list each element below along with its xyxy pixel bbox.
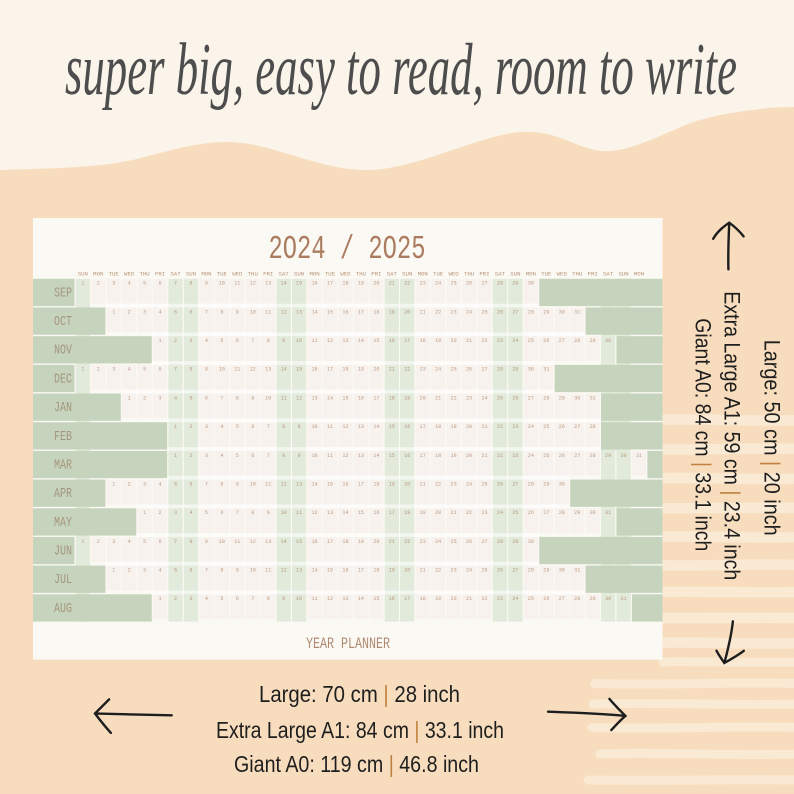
svg-text:SUN: SUN [510,272,520,278]
svg-text:4: 4 [128,539,131,545]
svg-text:29: 29 [512,539,518,545]
svg-text:13: 13 [296,568,302,574]
svg-text:Giant A0: 84 cm | 33.1 inch: Giant A0: 84 cm | 33.1 inch [690,318,715,551]
svg-text:15: 15 [389,453,395,459]
svg-text:20: 20 [420,395,426,401]
svg-text:15: 15 [327,568,333,574]
svg-text:13: 13 [327,510,333,516]
svg-text:10: 10 [219,281,225,287]
svg-text:6: 6 [251,453,254,459]
svg-text:2: 2 [97,367,100,373]
svg-text:22: 22 [404,281,410,287]
svg-text:17: 17 [420,424,426,430]
svg-text:4: 4 [220,453,223,459]
svg-text:super big, easy to read, roo: super big, easy to read, room to write [65,29,737,111]
svg-text:10: 10 [219,367,225,373]
svg-text:22: 22 [435,568,441,574]
svg-text:28: 28 [528,481,534,487]
svg-text:OCT: OCT [54,315,72,330]
svg-text:23: 23 [497,596,503,602]
svg-text:9: 9 [282,338,285,344]
svg-text:23: 23 [481,510,487,516]
svg-text:6: 6 [189,568,192,574]
svg-text:29: 29 [543,309,549,315]
svg-text:20: 20 [466,453,472,459]
svg-text:13: 13 [265,539,271,545]
svg-text:2O24 / 2O25: 2O24 / 2O25 [269,231,426,268]
svg-text:19: 19 [435,338,441,344]
svg-text:31: 31 [574,568,580,574]
svg-text:TUE: TUE [217,272,227,278]
svg-text:14: 14 [373,424,379,430]
svg-text:13: 13 [342,338,348,344]
svg-text:27: 27 [559,596,565,602]
svg-text:3: 3 [112,281,115,287]
svg-text:17: 17 [327,539,333,545]
svg-text:18: 18 [420,596,426,602]
svg-text:12: 12 [342,453,348,459]
svg-text:22: 22 [435,481,441,487]
svg-text:31: 31 [543,367,549,373]
svg-text:24: 24 [466,309,472,315]
svg-text:WED: WED [449,272,459,278]
svg-text:12: 12 [312,510,318,516]
svg-text:12: 12 [281,309,287,315]
svg-text:12: 12 [250,539,256,545]
svg-text:9: 9 [251,395,254,401]
svg-text:24: 24 [435,281,441,287]
svg-text:11: 11 [265,568,271,574]
svg-text:16: 16 [342,568,348,574]
svg-text:24: 24 [435,367,441,373]
svg-text:2: 2 [97,539,100,545]
svg-text:SEP: SEP [54,286,72,301]
svg-text:2: 2 [189,453,192,459]
svg-text:9: 9 [236,568,239,574]
svg-text:30: 30 [621,453,627,459]
svg-text:16: 16 [373,510,379,516]
svg-text:10: 10 [219,539,225,545]
svg-text:2: 2 [97,281,100,287]
svg-text:28: 28 [590,424,596,430]
svg-text:12: 12 [327,338,333,344]
svg-text:TUE: TUE [109,272,119,278]
svg-text:MON: MON [418,272,428,278]
svg-text:1: 1 [174,424,177,430]
svg-text:JAN: JAN [54,401,72,416]
svg-text:29: 29 [590,596,596,602]
svg-text:6: 6 [189,481,192,487]
svg-text:26: 26 [543,596,549,602]
svg-text:FRI: FRI [588,272,598,278]
svg-text:4: 4 [189,510,192,516]
svg-text:7: 7 [174,539,177,545]
svg-text:SUN: SUN [294,272,304,278]
svg-text:14: 14 [312,481,318,487]
svg-text:4: 4 [159,568,162,574]
svg-text:11: 11 [327,453,333,459]
svg-text:25: 25 [451,281,457,287]
svg-text:15: 15 [296,281,302,287]
svg-text:6: 6 [220,510,223,516]
svg-text:27: 27 [481,367,487,373]
svg-text:9: 9 [267,510,270,516]
svg-text:14: 14 [358,596,364,602]
svg-text:16: 16 [404,453,410,459]
svg-text:22: 22 [435,309,441,315]
svg-text:4: 4 [205,596,208,602]
svg-text:1: 1 [159,596,162,602]
svg-text:13: 13 [265,367,271,373]
svg-text:13: 13 [358,453,364,459]
svg-text:3: 3 [143,481,146,487]
svg-text:13: 13 [265,281,271,287]
svg-text:22: 22 [404,539,410,545]
svg-text:Extra Large A1: 84 cm | 33.1 i: Extra Large A1: 84 cm | 33.1 inch [216,717,504,743]
svg-text:MON: MON [634,272,644,278]
svg-text:5: 5 [143,281,146,287]
svg-text:22: 22 [451,395,457,401]
svg-text:6: 6 [159,281,162,287]
svg-text:16: 16 [404,424,410,430]
svg-text:10: 10 [250,309,256,315]
svg-text:17: 17 [420,453,426,459]
svg-text:14: 14 [373,453,379,459]
svg-text:9: 9 [205,281,208,287]
svg-text:19: 19 [404,395,410,401]
svg-text:23: 23 [420,539,426,545]
svg-text:3: 3 [159,395,162,401]
svg-text:29: 29 [512,367,518,373]
svg-text:MON: MON [93,272,103,278]
svg-text:19: 19 [389,481,395,487]
svg-text:17: 17 [358,481,364,487]
svg-text:31: 31 [590,395,596,401]
svg-text:MON: MON [201,272,211,278]
svg-text:TUE: TUE [433,272,443,278]
svg-text:10: 10 [296,338,302,344]
svg-text:21: 21 [389,539,395,545]
svg-text:15: 15 [373,596,379,602]
svg-text:24: 24 [497,510,503,516]
svg-text:22: 22 [481,596,487,602]
svg-text:4: 4 [128,367,131,373]
svg-text:27: 27 [512,309,518,315]
svg-text:10: 10 [296,596,302,602]
svg-text:18: 18 [373,568,379,574]
svg-text:FRI: FRI [155,272,165,278]
svg-text:24: 24 [466,481,472,487]
svg-text:5: 5 [205,510,208,516]
svg-text:11: 11 [281,395,287,401]
svg-text:21: 21 [389,281,395,287]
svg-text:19: 19 [358,367,364,373]
svg-text:3: 3 [205,453,208,459]
svg-text:26: 26 [497,568,503,574]
svg-text:SAT: SAT [603,272,613,278]
svg-text:DEC: DEC [54,372,72,387]
svg-text:31: 31 [574,309,580,315]
svg-text:21: 21 [420,309,426,315]
svg-text:Extra Large A1: 59 cm | 23.4 i: Extra Large A1: 59 cm | 23.4 inch [719,291,744,580]
svg-text:8: 8 [251,510,254,516]
svg-text:13: 13 [358,424,364,430]
svg-text:25: 25 [481,481,487,487]
svg-text:3: 3 [112,367,115,373]
svg-text:9: 9 [205,367,208,373]
svg-text:1: 1 [81,281,84,287]
svg-text:21: 21 [389,367,395,373]
svg-text:8: 8 [189,281,192,287]
svg-text:18: 18 [342,367,348,373]
svg-text:10: 10 [250,481,256,487]
svg-text:8: 8 [220,568,223,574]
svg-text:27: 27 [481,281,487,287]
svg-text:18: 18 [420,338,426,344]
svg-text:3: 3 [205,424,208,430]
svg-text:15: 15 [373,338,379,344]
svg-text:4: 4 [159,481,162,487]
svg-text:28: 28 [559,510,565,516]
svg-text:18: 18 [389,395,395,401]
svg-text:26: 26 [466,281,472,287]
svg-text:13: 13 [296,309,302,315]
svg-text:28: 28 [528,568,534,574]
svg-text:23: 23 [497,338,503,344]
svg-text:12: 12 [281,568,287,574]
svg-text:4: 4 [220,424,223,430]
svg-text:6: 6 [189,309,192,315]
svg-text:4: 4 [128,281,131,287]
svg-text:2: 2 [128,309,131,315]
svg-text:23: 23 [420,367,426,373]
svg-text:22: 22 [497,424,503,430]
svg-text:27: 27 [512,481,518,487]
svg-text:22: 22 [497,453,503,459]
svg-text:30: 30 [559,481,565,487]
svg-text:8: 8 [189,367,192,373]
svg-text:FRI: FRI [371,272,381,278]
svg-text:MAY: MAY [54,516,72,531]
svg-text:1: 1 [112,481,115,487]
svg-text:11: 11 [234,367,240,373]
svg-text:16: 16 [342,309,348,315]
svg-text:11: 11 [234,281,240,287]
svg-text:THU: THU [248,272,258,278]
svg-text:FEB: FEB [54,430,72,445]
svg-text:18: 18 [342,539,348,545]
svg-text:28: 28 [497,539,503,545]
svg-text:23: 23 [466,395,472,401]
svg-text:8: 8 [189,539,192,545]
svg-text:MON: MON [526,272,536,278]
svg-text:APR: APR [54,487,72,502]
svg-text:17: 17 [327,281,333,287]
svg-text:28: 28 [574,596,580,602]
svg-text:5: 5 [174,309,177,315]
svg-text:26: 26 [466,367,472,373]
svg-text:5: 5 [220,338,223,344]
svg-text:2: 2 [128,568,131,574]
svg-text:FRI: FRI [263,272,273,278]
svg-text:26: 26 [512,395,518,401]
svg-text:19: 19 [358,539,364,545]
svg-text:14: 14 [312,568,318,574]
svg-text:FRI: FRI [479,272,489,278]
svg-text:14: 14 [281,367,287,373]
svg-text:19: 19 [389,309,395,315]
svg-text:20: 20 [451,596,457,602]
svg-text:30: 30 [590,510,596,516]
svg-text:9: 9 [236,481,239,487]
svg-text:5: 5 [236,453,239,459]
svg-text:MON: MON [309,272,319,278]
svg-text:15: 15 [296,367,302,373]
svg-text:21: 21 [420,481,426,487]
svg-text:7: 7 [205,481,208,487]
svg-text:26: 26 [559,453,565,459]
svg-text:SUN: SUN [402,272,412,278]
svg-text:28: 28 [497,367,503,373]
svg-text:21: 21 [466,596,472,602]
svg-text:15: 15 [327,481,333,487]
svg-text:7: 7 [174,281,177,287]
svg-text:15: 15 [327,309,333,315]
svg-text:24: 24 [481,395,487,401]
svg-text:19: 19 [358,281,364,287]
svg-text:24: 24 [512,596,518,602]
svg-text:15: 15 [389,424,395,430]
svg-text:25: 25 [497,395,503,401]
svg-text:21: 21 [481,453,487,459]
svg-text:2: 2 [189,424,192,430]
svg-text:17: 17 [358,309,364,315]
svg-text:1: 1 [112,309,115,315]
svg-text:25: 25 [528,596,534,602]
svg-text:4: 4 [205,338,208,344]
svg-text:11: 11 [265,309,271,315]
svg-text:31: 31 [636,453,642,459]
svg-text:8: 8 [236,395,239,401]
svg-text:8: 8 [220,309,223,315]
svg-text:25: 25 [451,367,457,373]
svg-text:11: 11 [234,539,240,545]
svg-text:22: 22 [404,367,410,373]
svg-text:26: 26 [497,309,503,315]
svg-text:11: 11 [265,481,271,487]
svg-text:24: 24 [466,568,472,574]
svg-text:12: 12 [281,481,287,487]
svg-text:19: 19 [451,424,457,430]
svg-text:29: 29 [543,481,549,487]
svg-text:SAT: SAT [170,272,180,278]
svg-text:30: 30 [605,596,611,602]
svg-text:14: 14 [358,338,364,344]
svg-text:WED: WED [557,272,567,278]
svg-text:28: 28 [543,395,549,401]
svg-text:28: 28 [590,453,596,459]
svg-text:2: 2 [174,338,177,344]
svg-text:2: 2 [174,596,177,602]
svg-text:20: 20 [451,338,457,344]
svg-text:29: 29 [574,510,580,516]
svg-text:9: 9 [298,424,301,430]
svg-text:16: 16 [389,338,395,344]
svg-text:5: 5 [189,395,192,401]
svg-text:29: 29 [512,281,518,287]
svg-text:3: 3 [174,510,177,516]
svg-text:25: 25 [528,338,534,344]
svg-text:21: 21 [420,568,426,574]
svg-text:23: 23 [451,481,457,487]
svg-text:30: 30 [559,309,565,315]
svg-text:3: 3 [143,568,146,574]
svg-text:TUE: TUE [541,272,551,278]
svg-text:SUN: SUN [186,272,196,278]
svg-text:6: 6 [251,424,254,430]
svg-text:22: 22 [481,338,487,344]
svg-text:THU: THU [140,272,150,278]
svg-text:17: 17 [389,510,395,516]
svg-text:7: 7 [174,367,177,373]
svg-text:13: 13 [312,395,318,401]
svg-text:26: 26 [559,424,565,430]
svg-text:THU: THU [356,272,366,278]
svg-text:23: 23 [512,453,518,459]
svg-text:MAR: MAR [54,458,72,473]
svg-text:14: 14 [342,510,348,516]
svg-text:18: 18 [342,281,348,287]
svg-text:30: 30 [574,395,580,401]
svg-text:20: 20 [404,309,410,315]
svg-text:12: 12 [342,424,348,430]
svg-text:5: 5 [174,481,177,487]
svg-text:28: 28 [497,281,503,287]
svg-text:27: 27 [528,395,534,401]
svg-text:12: 12 [250,367,256,373]
svg-text:8: 8 [220,481,223,487]
svg-text:29: 29 [559,395,565,401]
svg-text:30: 30 [528,367,534,373]
svg-text:16: 16 [358,395,364,401]
svg-text:TUE: TUE [325,272,335,278]
svg-text:10: 10 [265,395,271,401]
svg-text:25: 25 [512,510,518,516]
svg-text:20: 20 [404,568,410,574]
svg-text:17: 17 [404,338,410,344]
svg-text:JUL: JUL [54,573,72,588]
svg-text:5: 5 [143,539,146,545]
svg-text:16: 16 [312,367,318,373]
svg-text:29: 29 [543,568,549,574]
svg-text:WED: WED [124,272,134,278]
svg-text:5: 5 [236,424,239,430]
svg-text:AUG: AUG [54,602,72,617]
svg-text:23: 23 [451,568,457,574]
svg-text:26: 26 [497,481,503,487]
svg-text:18: 18 [435,453,441,459]
svg-text:8: 8 [282,424,285,430]
svg-text:27: 27 [481,539,487,545]
svg-text:20: 20 [404,481,410,487]
svg-text:20: 20 [373,367,379,373]
svg-text:5: 5 [174,568,177,574]
svg-text:14: 14 [281,539,287,545]
svg-text:29: 29 [590,338,596,344]
svg-text:21: 21 [481,424,487,430]
svg-text:20: 20 [435,510,441,516]
svg-text:23: 23 [420,281,426,287]
